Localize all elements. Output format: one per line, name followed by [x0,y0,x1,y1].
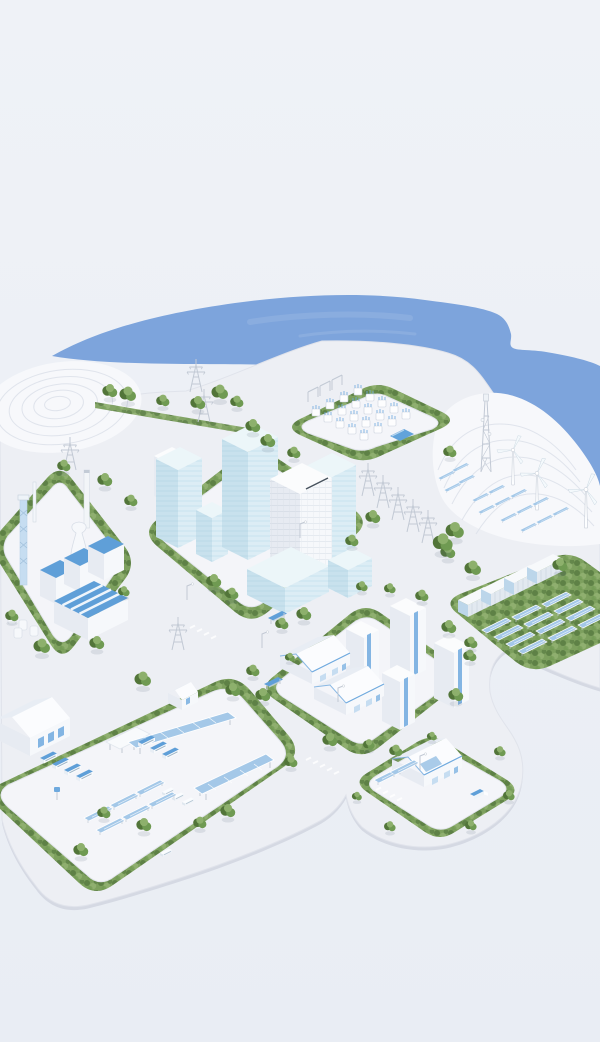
transformer [388,415,396,426]
transformer [352,397,360,408]
transformer [366,390,374,401]
chimney [84,470,90,528]
transformer [402,408,410,419]
flare-stack [33,482,36,522]
transformer [390,402,398,413]
transformer [376,409,384,420]
office-tower-glass-a [156,447,202,548]
scene-canvas [0,0,600,1042]
transformer [336,417,344,428]
transformer [326,398,334,409]
transformer [324,411,332,422]
transformer [378,396,386,407]
transformer [350,410,358,421]
transformer [374,422,382,433]
transformer [340,391,348,402]
transformer [360,429,368,440]
apartment-tower-3 [382,665,415,730]
isometric-city-illustration [0,0,600,1042]
transformer [364,403,372,414]
transformer [312,405,320,416]
transformer [362,416,370,427]
transformer [348,423,356,434]
transformer [338,404,346,415]
transformer [354,384,362,395]
